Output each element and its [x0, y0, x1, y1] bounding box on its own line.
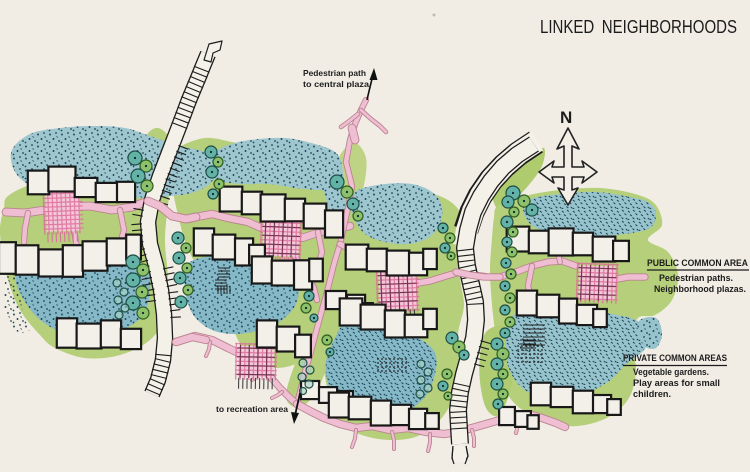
svg-text:to central plaza: to central plaza	[303, 79, 369, 89]
svg-text:to recreation area: to recreation area	[216, 404, 288, 414]
svg-text:PRIVATE COMMON AREAS: PRIVATE COMMON AREAS	[623, 353, 727, 364]
svg-text:Play areas for small: Play areas for small	[633, 378, 720, 388]
svg-text:Neighborhood plazas.: Neighborhood plazas.	[654, 284, 746, 294]
svg-text:Pedestrian path: Pedestrian path	[303, 68, 366, 78]
svg-text:Vegetable gardens.: Vegetable gardens.	[633, 367, 709, 377]
svg-text:LINKED NEIGHBORHOODS: LINKED NEIGHBORHOODS	[540, 17, 737, 37]
svg-text:N: N	[560, 108, 572, 127]
svg-text:PUBLIC COMMON AREA: PUBLIC COMMON AREA	[647, 258, 748, 269]
svg-text:Pedestrian paths.: Pedestrian paths.	[659, 273, 733, 283]
svg-text:children.: children.	[633, 389, 671, 399]
